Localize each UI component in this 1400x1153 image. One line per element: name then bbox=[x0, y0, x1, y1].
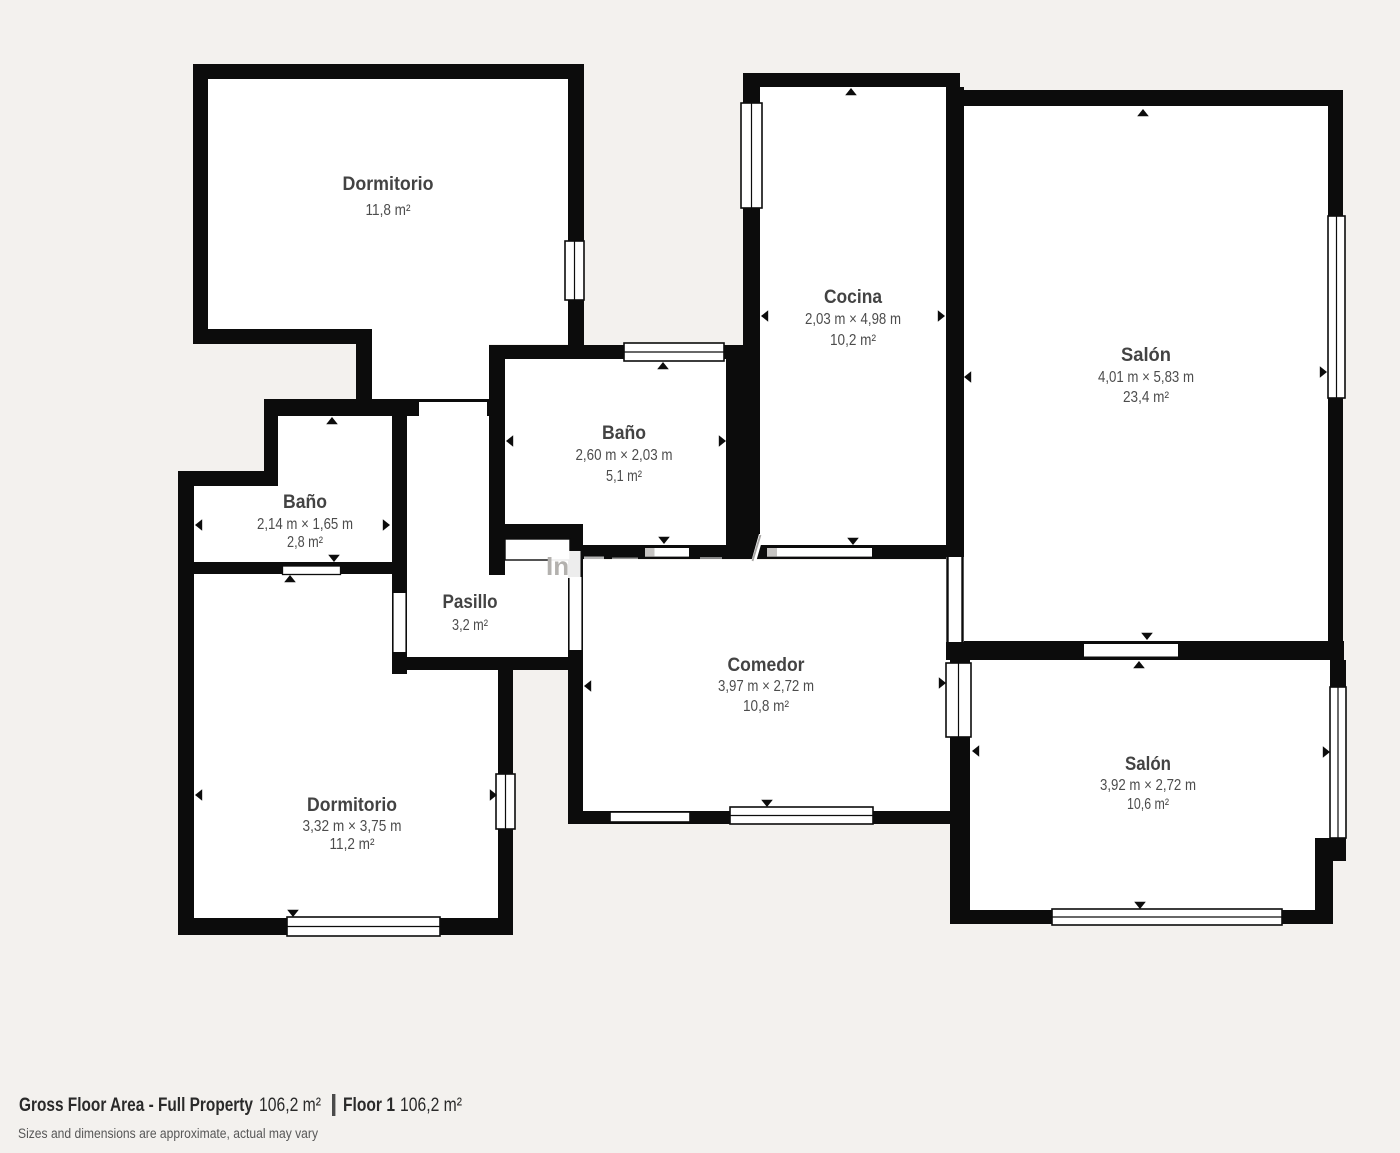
svg-text:Salón: Salón bbox=[1121, 345, 1171, 366]
svg-text:11,8 m²: 11,8 m² bbox=[366, 202, 411, 219]
svg-text:11,2 m²: 11,2 m² bbox=[330, 836, 375, 853]
svg-text:5,1 m²: 5,1 m² bbox=[606, 468, 642, 485]
svg-text:2,60 m × 2,03 m: 2,60 m × 2,03 m bbox=[576, 447, 673, 464]
svg-text:Floor 1: Floor 1 bbox=[343, 1094, 395, 1116]
svg-text:2,03 m × 4,98 m: 2,03 m × 4,98 m bbox=[805, 311, 901, 328]
svg-text:106,2 m²: 106,2 m² bbox=[400, 1094, 462, 1116]
svg-text:Salón: Salón bbox=[1125, 754, 1171, 775]
svg-text:Baño: Baño bbox=[602, 423, 646, 444]
svg-text:10,8 m²: 10,8 m² bbox=[743, 698, 789, 715]
svg-text:3,32 m × 3,75 m: 3,32 m × 3,75 m bbox=[303, 818, 402, 835]
svg-text:Sizes and dimensions are appro: Sizes and dimensions are approximate, ac… bbox=[18, 1126, 318, 1141]
svg-text:10,2 m²: 10,2 m² bbox=[830, 332, 876, 349]
svg-text:2,8 m²: 2,8 m² bbox=[287, 534, 323, 551]
svg-text:3,2 m²: 3,2 m² bbox=[452, 617, 488, 634]
svg-text:106,2 m²: 106,2 m² bbox=[259, 1094, 321, 1116]
svg-text:3,92 m × 2,72 m: 3,92 m × 2,72 m bbox=[1100, 777, 1196, 794]
svg-text:23,4 m²: 23,4 m² bbox=[1123, 389, 1169, 406]
svg-text:Dormitorio: Dormitorio bbox=[343, 174, 434, 195]
svg-text:2,14 m × 1,65 m: 2,14 m × 1,65 m bbox=[257, 516, 353, 533]
svg-text:Pasillo: Pasillo bbox=[443, 592, 498, 613]
svg-text:Gross Floor Area - Full Proper: Gross Floor Area - Full Property bbox=[19, 1094, 253, 1116]
svg-text:10,6 m²: 10,6 m² bbox=[1127, 796, 1169, 813]
svg-text:3,97 m × 2,72 m: 3,97 m × 2,72 m bbox=[718, 678, 814, 695]
svg-text:Cocina: Cocina bbox=[824, 287, 882, 308]
svg-text:Comedor: Comedor bbox=[728, 655, 806, 676]
svg-text:4,01 m × 5,83 m: 4,01 m × 5,83 m bbox=[1098, 369, 1194, 386]
svg-text:Baño: Baño bbox=[283, 492, 327, 513]
svg-text:Dormitorio: Dormitorio bbox=[307, 795, 397, 816]
svg-text:In: In bbox=[546, 551, 569, 581]
